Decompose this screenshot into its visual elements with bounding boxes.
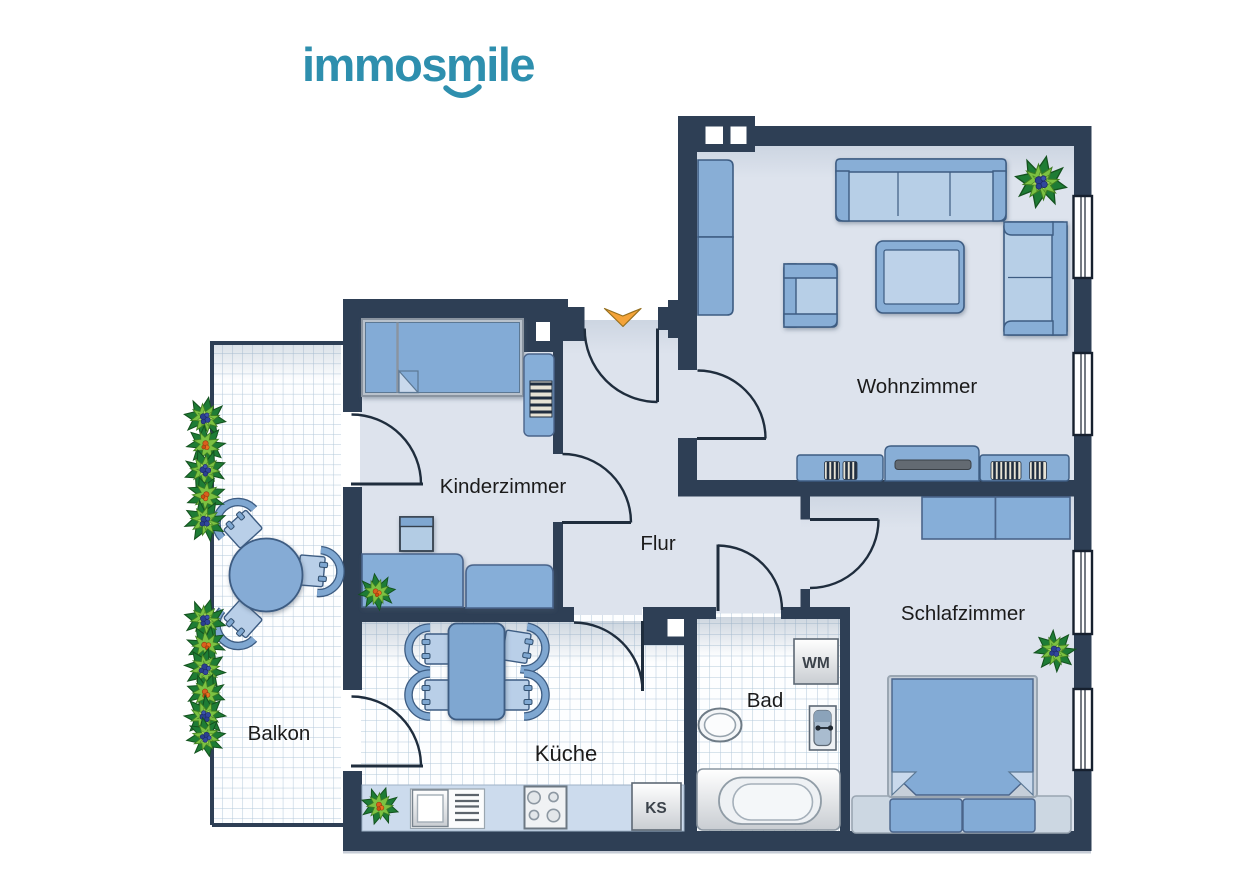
svg-text:Schlafzimmer: Schlafzimmer	[901, 602, 1025, 625]
svg-text:Balkon: Balkon	[248, 722, 311, 745]
svg-text:KS: KS	[645, 800, 667, 817]
svg-text:Kinderzimmer: Kinderzimmer	[440, 475, 567, 498]
svg-text:immosmile: immosmile	[302, 38, 534, 91]
svg-text:WM: WM	[802, 655, 830, 672]
svg-text:Küche: Küche	[535, 741, 597, 766]
svg-text:Flur: Flur	[640, 532, 675, 555]
svg-text:Bad: Bad	[747, 689, 783, 712]
svg-text:Wohnzimmer: Wohnzimmer	[857, 375, 978, 398]
